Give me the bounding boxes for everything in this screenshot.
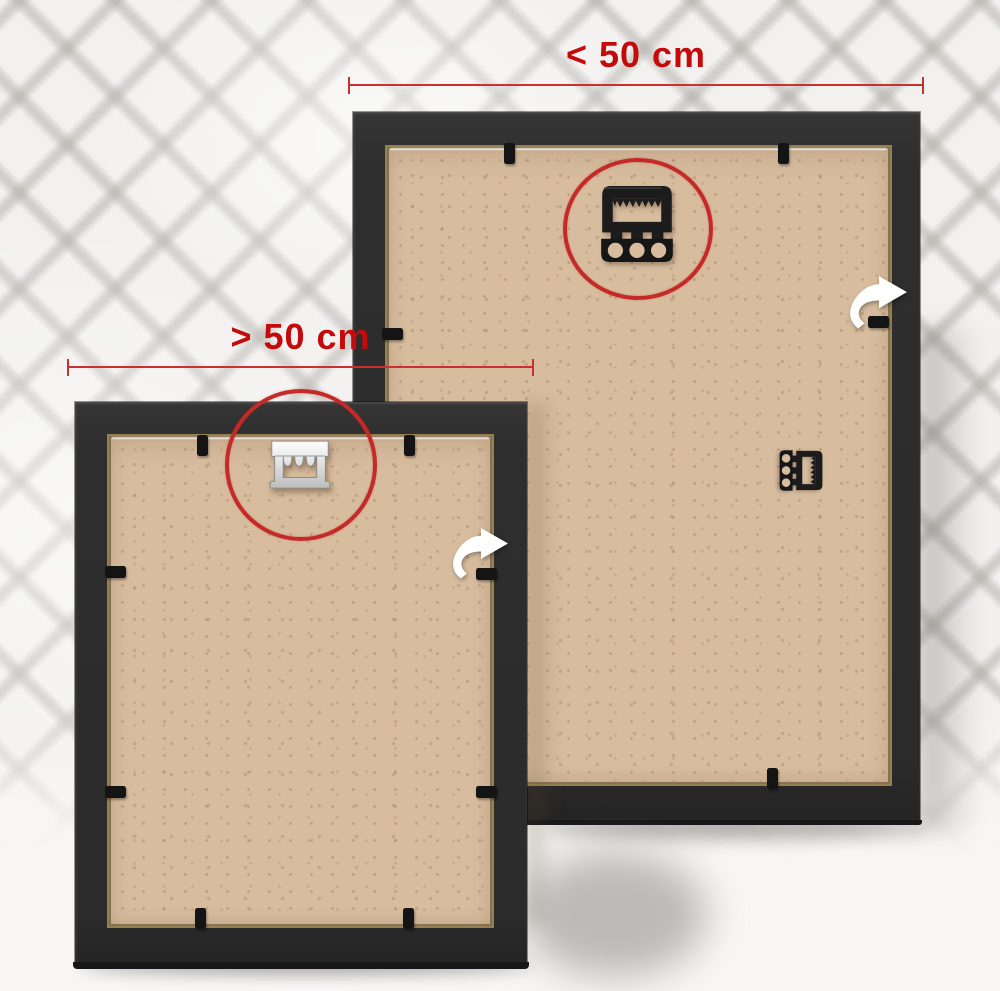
small-frame-size-label: > 50 cm: [68, 318, 533, 356]
retainer-clip: [105, 566, 126, 578]
retainer-clip: [404, 435, 415, 456]
retainer-clip: [105, 786, 126, 798]
large-frame-dimension-line: [349, 84, 923, 86]
retainer-clip: [767, 768, 778, 789]
large-frame-size-label: < 50 cm: [349, 36, 923, 74]
retainer-clip: [476, 786, 497, 798]
product-photo-frame-backs: < 50 cm > 50 cm: [0, 0, 1000, 991]
flip-arrow-icon: [848, 274, 908, 330]
retainer-clip: [195, 908, 206, 929]
flip-arrow-icon: [451, 526, 509, 580]
retainer-clip: [778, 143, 789, 164]
backboard-top-highlight: [390, 148, 887, 150]
spare-hanger-icon: [780, 449, 823, 493]
retainer-clip: [504, 143, 515, 164]
retainer-clip: [403, 908, 414, 929]
highlight-circle: [225, 389, 377, 541]
highlight-circle: [563, 158, 713, 300]
small-frame-dimension-line: [68, 366, 533, 368]
retainer-clip: [197, 435, 208, 456]
